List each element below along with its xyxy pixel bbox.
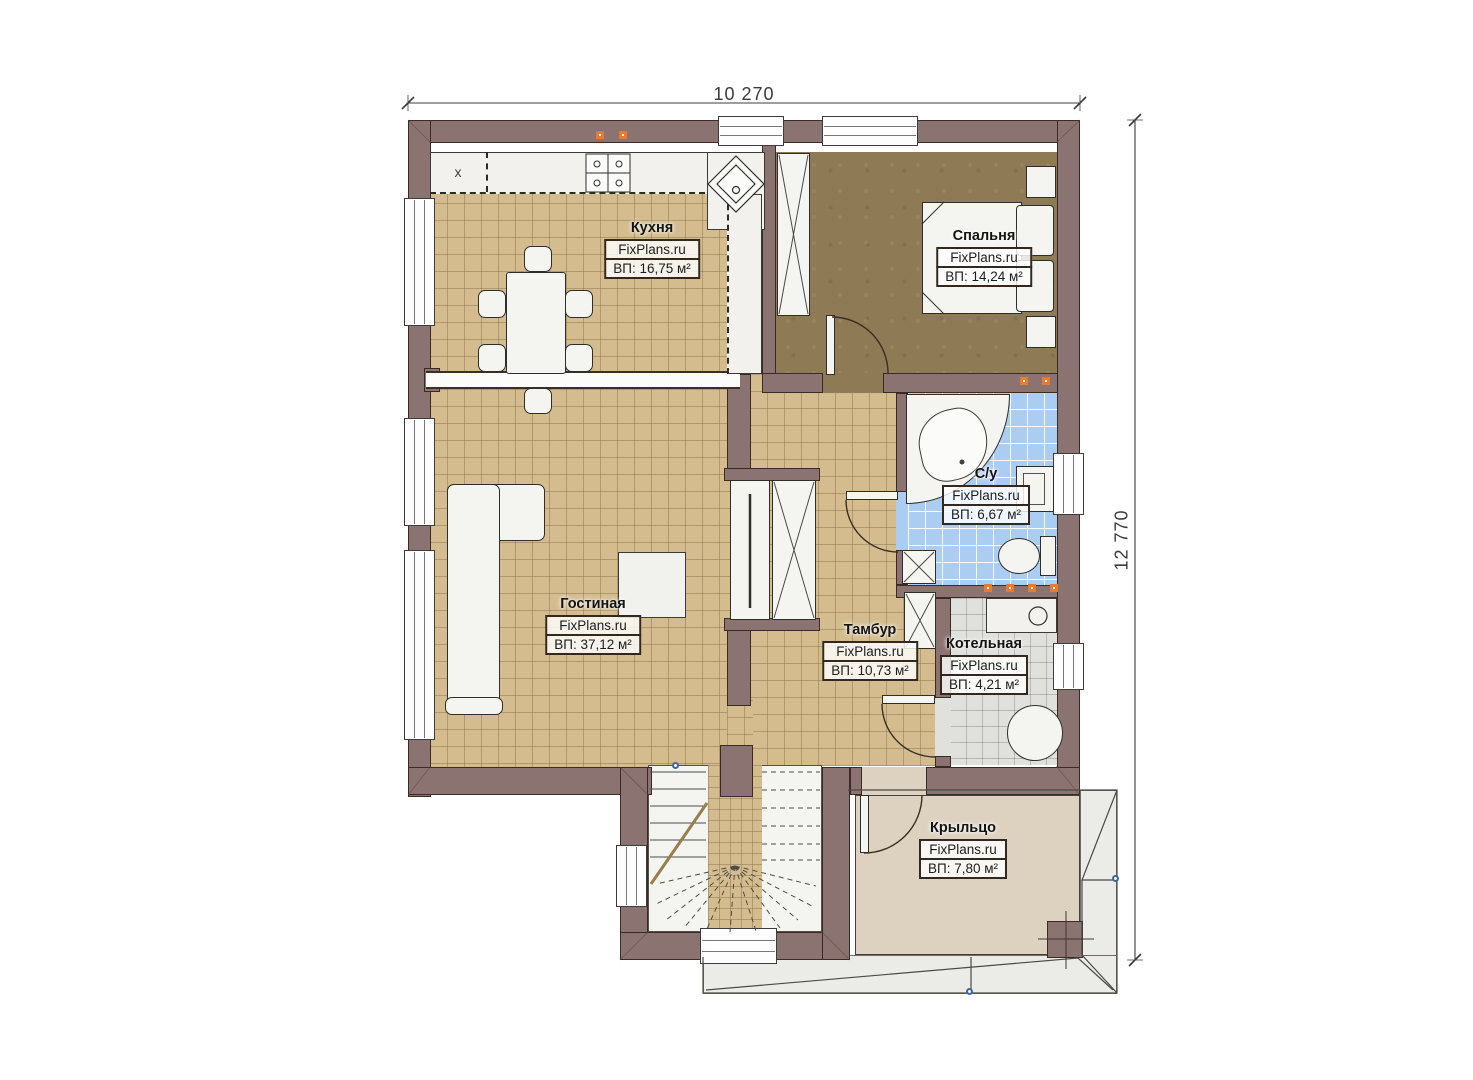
room-label-living-room: Гостиная FixPlans.ru ВП: 37,12 м² [545, 596, 641, 655]
kitchen-counter-right [727, 194, 762, 374]
bedroom-wardrobe [777, 153, 810, 316]
room-name: Крыльцо [919, 820, 1007, 836]
bathroom-door-leaf [846, 491, 898, 500]
nightstand-2 [1026, 316, 1056, 348]
socket-marker-icon [1050, 584, 1058, 592]
area-box: ВП: 6,67 м² [942, 504, 1030, 525]
entrance-door-leaf [860, 795, 869, 853]
area-box: ВП: 16,75 м² [604, 258, 700, 279]
dining-chair-right-2 [565, 344, 593, 372]
area-box: ВП: 14,24 м² [936, 266, 1032, 287]
window-stair-bottom [700, 928, 777, 964]
watermark-box: FixPlans.ru [919, 839, 1007, 860]
boiler-door-threshold [935, 698, 951, 756]
room-label-porch: Крыльцо FixPlans.ru ВП: 7,80 м² [919, 820, 1007, 879]
window-left-living-1 [404, 418, 435, 526]
wall-boiler-left-lower [935, 756, 951, 767]
wall-bedroom-south-right [883, 373, 1058, 393]
room-label-bedroom: Спальня FixPlans.ru ВП: 14,24 м² [936, 228, 1032, 287]
kitchen-living-partition [426, 371, 740, 389]
floor-plan-canvas: x [0, 0, 1473, 1080]
tv-unit-panel [730, 480, 770, 620]
room-name: Кухня [604, 220, 700, 236]
watermark-box: FixPlans.ru [940, 655, 1028, 676]
sofa-body [447, 484, 500, 712]
socket-marker-icon [1028, 584, 1036, 592]
watermark-box: FixPlans.ru [545, 615, 641, 636]
window-left-living-2 [404, 550, 435, 740]
window-right-boiler [1053, 643, 1084, 690]
appliance-x-marker: x [455, 164, 462, 180]
watermark-box: FixPlans.ru [604, 239, 700, 260]
room-name: С/у [942, 466, 1030, 482]
nightstand-1 [1026, 166, 1056, 198]
dining-chair-top [524, 246, 552, 272]
survey-point-icon [966, 988, 973, 995]
window-top-bedroom [822, 116, 918, 146]
dining-table [506, 272, 566, 374]
hall-wardrobe [772, 480, 816, 620]
dimension-width-label: 10 270 [713, 84, 774, 105]
sofa-armrest [445, 697, 503, 715]
socket-marker-icon [984, 584, 992, 592]
dimension-height-label: 12 770 [1112, 509, 1133, 570]
dining-chair-right-1 [565, 290, 593, 318]
window-stair-left [616, 845, 647, 907]
room-label-bathroom: С/у FixPlans.ru ВП: 6,67 м² [942, 466, 1030, 525]
passage-floor [727, 700, 753, 750]
kitchen-appliance-cell: x [430, 152, 488, 192]
boiler-counter [986, 598, 1057, 633]
socket-marker-icon [1006, 584, 1014, 592]
bedroom-door-threshold [823, 373, 883, 393]
room-name: Гостиная [545, 596, 641, 612]
socket-marker-icon [1020, 377, 1028, 385]
entrance-door-threshold [862, 767, 926, 795]
area-box: ВП: 7,80 м² [919, 858, 1007, 879]
room-name: Котельная [940, 636, 1028, 652]
room-label-kitchen: Кухня FixPlans.ru ВП: 16,75 м² [604, 220, 700, 279]
wall-bottom-living [408, 767, 652, 795]
area-box: ВП: 4,21 м² [940, 674, 1028, 695]
vent-shaft-1 [902, 550, 936, 584]
area-box: ВП: 37,12 м² [545, 634, 641, 655]
socket-marker-icon [619, 131, 627, 139]
area-box: ВП: 10,73 м² [822, 660, 918, 681]
boiler-tank [1007, 705, 1063, 761]
room-label-vestibule: Тамбур FixPlans.ru ВП: 10,73 м² [822, 622, 918, 681]
dining-chair-left-1 [478, 290, 506, 318]
toilet-tank [1040, 536, 1056, 576]
window-right-bathroom [1053, 453, 1084, 515]
room-name: Спальня [936, 228, 1032, 244]
dining-chair-bottom [524, 388, 552, 414]
survey-point-icon [1112, 875, 1119, 882]
wall-stair-column [720, 745, 753, 797]
survey-point-icon [672, 762, 679, 769]
bedroom-door-leaf [826, 315, 835, 375]
wall-vestibule-bottom-right [926, 767, 1080, 795]
boiler-door-leaf [882, 695, 935, 704]
wall-bedroom-south-left [762, 373, 823, 393]
socket-marker-icon [596, 131, 604, 139]
dining-chair-left-2 [478, 344, 506, 372]
watermark-box: FixPlans.ru [942, 485, 1030, 506]
wall-vestibule-bottom-left [850, 767, 862, 795]
room-label-boiler-room: Котельная FixPlans.ru ВП: 4,21 м² [940, 636, 1028, 695]
toilet-bowl [998, 538, 1040, 574]
wall-stair-right [822, 767, 850, 960]
window-left-kitchen [404, 198, 435, 326]
watermark-box: FixPlans.ru [822, 641, 918, 662]
window-top-corridor [718, 116, 784, 146]
socket-marker-icon [1042, 377, 1050, 385]
porch-pillar [1047, 921, 1083, 958]
wall-spine-upper [727, 374, 751, 474]
room-name: Тамбур [822, 622, 918, 638]
watermark-box: FixPlans.ru [936, 247, 1032, 268]
wall-spine-lower [727, 628, 751, 706]
porch-roof-band-right [1080, 790, 1117, 956]
